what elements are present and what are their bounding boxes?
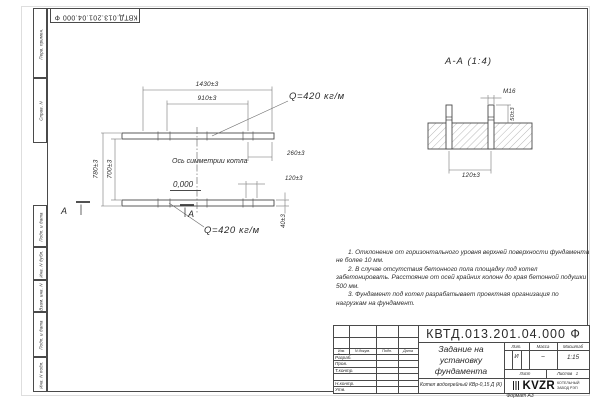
note-2: 2. В случае отсутствия бетонного пола пл…: [336, 266, 590, 291]
rail-bolt-ticks: [158, 132, 253, 208]
titleblock-name-line3: фундамента: [418, 366, 504, 377]
mass-value: –: [529, 354, 557, 364]
dim-780: 780±3: [93, 159, 100, 178]
lit-value: И: [512, 354, 521, 364]
concrete-slab: [428, 123, 532, 149]
load-top-leader: [212, 101, 288, 136]
top-rail: [122, 133, 274, 139]
dim-50: 50±3: [510, 107, 516, 121]
dim-260: 260±3: [287, 151, 305, 157]
titleblock-doc-number: КВТД.013.201.04.000 Ф: [418, 326, 589, 342]
titleblock-name: Задание на установку фундамента: [418, 342, 504, 378]
load-bottom-leader: [169, 203, 204, 227]
mass-label: Масса: [529, 344, 557, 351]
dim-1430: 1430±3: [183, 81, 231, 88]
sheets-value: 1: [576, 371, 578, 376]
sheets-label: Листов: [557, 371, 572, 376]
title-block: Изм. Лист N докум. Подп. Дата Разраб. Пр…: [333, 325, 590, 394]
section-letter-right: А: [188, 209, 194, 219]
plan-rails: [122, 133, 274, 206]
col-header-podp: Подп.: [376, 349, 398, 355]
kvzr-spring-icon: [513, 381, 520, 390]
note-3: 3. Фундамент под котел разрабатывает про…: [336, 291, 590, 308]
plan-dimension-lines: [101, 87, 289, 214]
axis-of-symmetry-label: Ось симметрии котла: [172, 158, 247, 165]
sheet: { "colors": {"ink": "#4a4a4a", "paper": …: [0, 0, 600, 400]
grid-line: [334, 337, 418, 338]
dim-700: 700±3: [107, 159, 114, 178]
scale-value: 1:15: [557, 354, 589, 364]
logo-cell: KVZR КОТЕЛЬНЫЙ ЗАВОД РЭП: [504, 378, 589, 393]
logo-caption-line2: ЗАВОД РЭП: [557, 386, 580, 390]
col-header-data: Дата: [398, 349, 418, 355]
section-view-graphics: [428, 95, 532, 174]
note-1: 1. Отклонение от горизонтального уровня …: [336, 249, 590, 266]
technical-notes: 1. Отклонение от горизонтального уровня …: [336, 249, 590, 308]
load-label-top: Q=420 кг/м: [289, 91, 345, 102]
elevation-mark: 0,000: [170, 180, 201, 191]
row-label-tkontr: Т.контр.: [335, 368, 376, 374]
bottom-rail: [122, 200, 274, 206]
grid-line: [521, 350, 522, 369]
product-name: Котел водогрейный КВр-0,15 Д (К): [418, 378, 504, 393]
anchor-bolt-right: [488, 105, 494, 149]
load-label-bottom: Q=420 кг/м: [204, 225, 260, 236]
dim-120-plan: 120±3: [285, 176, 303, 182]
dim-40: 40±3: [281, 214, 287, 228]
kvzr-logo-text: KVZR: [522, 380, 555, 392]
logo-caption-line1: КОТЕЛЬНЫЙ: [557, 381, 580, 385]
dim-910: 910±3: [183, 95, 231, 102]
thread-callout-m16: М16: [503, 88, 516, 95]
kvzr-logo-caption: КОТЕЛЬНЫЙ ЗАВОД РЭП: [557, 381, 580, 390]
anchor-bolt-left: [446, 105, 452, 149]
format-note: Формат А3: [480, 393, 560, 399]
dim-120-section: 120±3: [454, 172, 488, 179]
section-letter-left: А: [61, 206, 67, 216]
row-label-prov: Пров.: [335, 361, 376, 367]
scale-label: Масштаб: [557, 344, 589, 351]
titleblock-name-line1: Задание на: [418, 344, 504, 355]
section-title: А-А (1:4): [445, 56, 492, 67]
lit-label: Лит.: [504, 344, 529, 351]
row-label-utv: Утв.: [335, 387, 376, 393]
titleblock-name-line2: установку: [418, 355, 504, 366]
bolt-thread-marks: [446, 117, 494, 120]
